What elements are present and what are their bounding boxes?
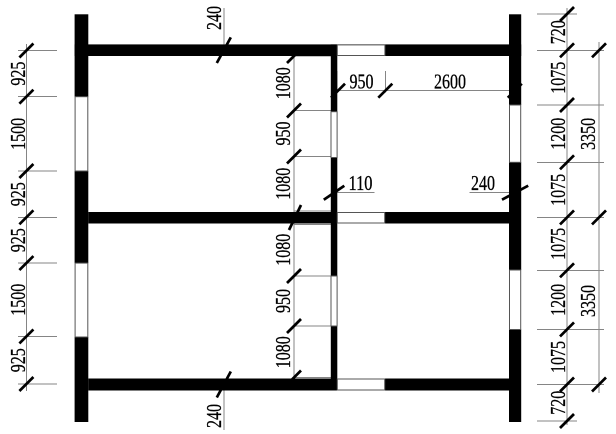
svg-text:1075: 1075 <box>546 341 570 373</box>
svg-text:240: 240 <box>202 404 226 428</box>
svg-text:925: 925 <box>6 348 30 372</box>
svg-text:950: 950 <box>350 70 374 94</box>
svg-text:720: 720 <box>546 391 570 415</box>
svg-text:1500: 1500 <box>6 118 30 150</box>
svg-text:1075: 1075 <box>546 174 570 206</box>
svg-text:3350: 3350 <box>576 285 600 317</box>
svg-text:240: 240 <box>471 171 495 195</box>
svg-text:240: 240 <box>202 6 226 30</box>
svg-text:925: 925 <box>6 62 30 86</box>
svg-text:110: 110 <box>349 171 373 195</box>
svg-text:950: 950 <box>271 289 295 313</box>
svg-text:1500: 1500 <box>6 284 30 316</box>
svg-text:3350: 3350 <box>576 118 600 150</box>
svg-text:1080: 1080 <box>271 168 295 200</box>
svg-text:925: 925 <box>6 182 30 206</box>
svg-text:1200: 1200 <box>546 284 570 316</box>
svg-text:1080: 1080 <box>271 336 295 368</box>
svg-text:1075: 1075 <box>546 228 570 260</box>
svg-text:2600: 2600 <box>434 70 466 94</box>
svg-text:1200: 1200 <box>546 118 570 150</box>
svg-text:1080: 1080 <box>271 67 295 99</box>
svg-text:1075: 1075 <box>546 62 570 94</box>
svg-text:950: 950 <box>271 122 295 146</box>
svg-text:925: 925 <box>6 228 30 252</box>
svg-text:1080: 1080 <box>271 234 295 266</box>
svg-text:720: 720 <box>546 20 570 44</box>
